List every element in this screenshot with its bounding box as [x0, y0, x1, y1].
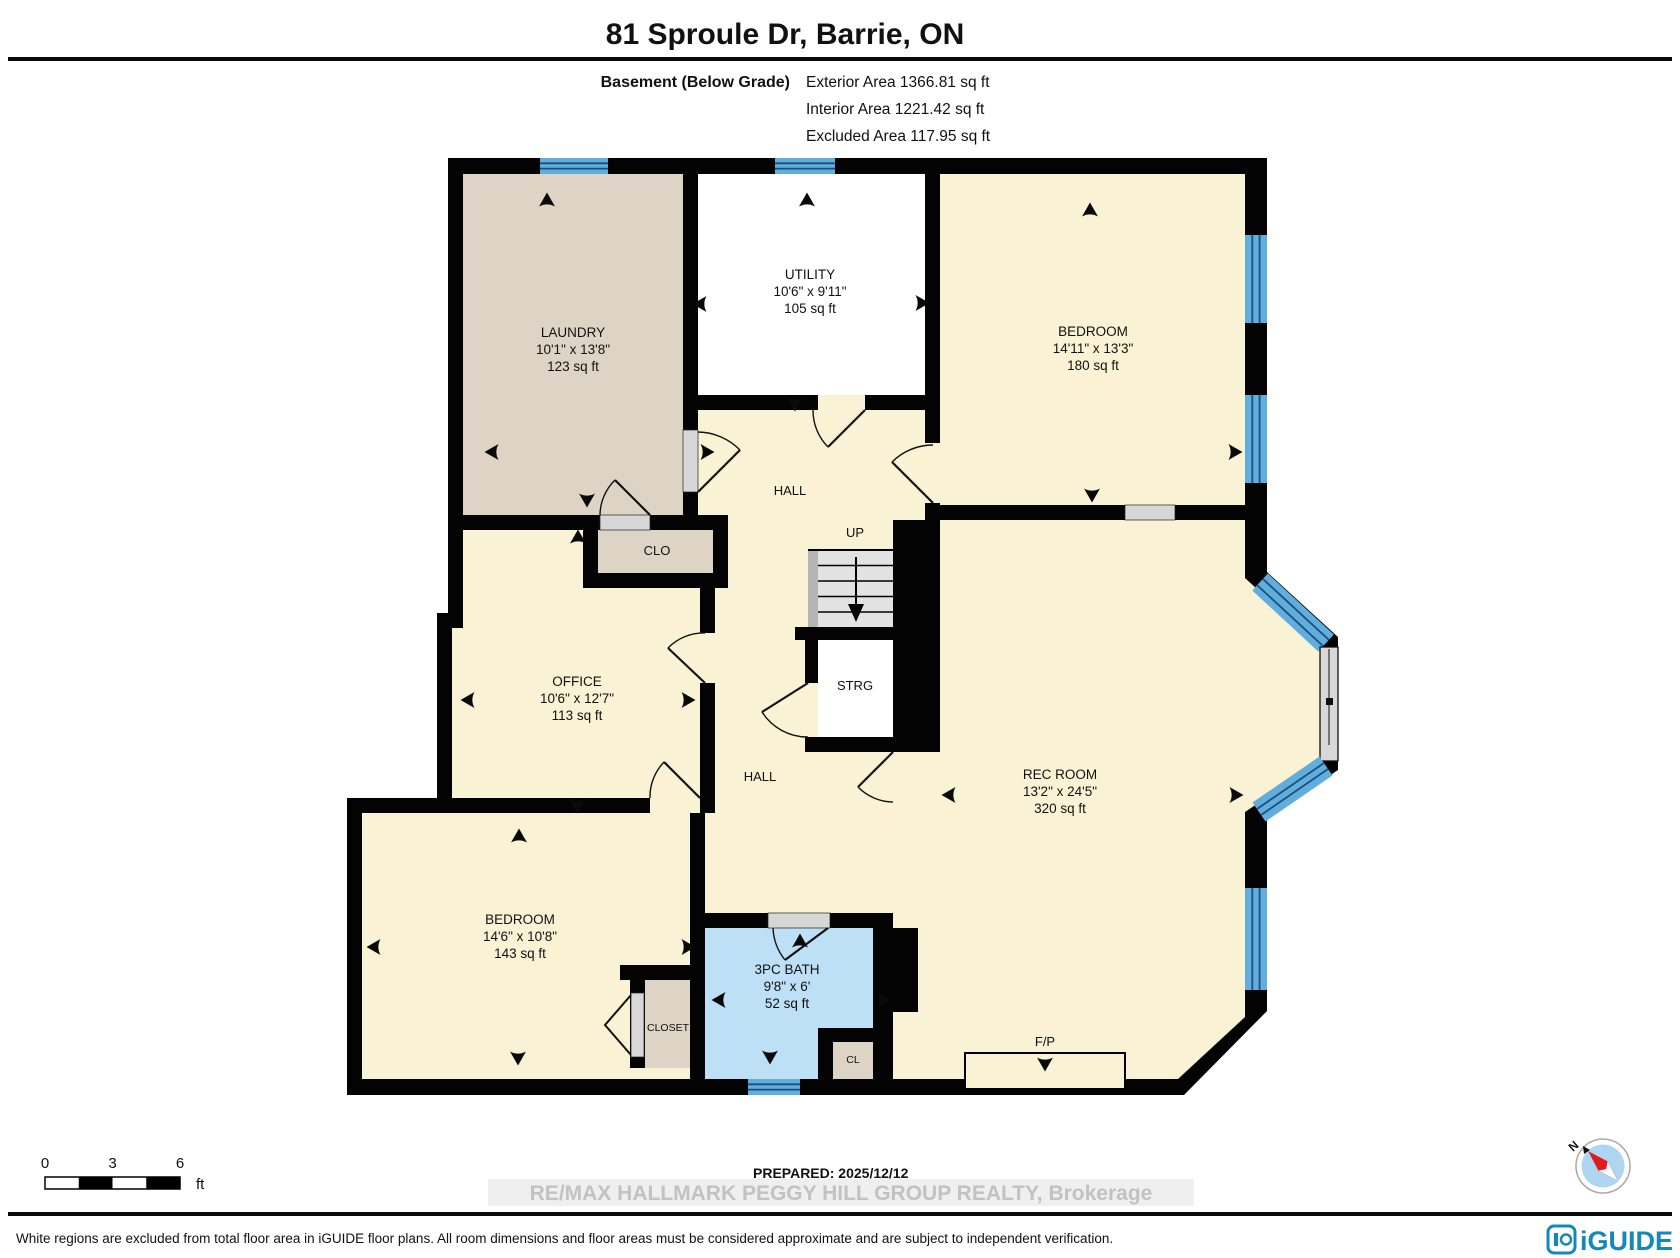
iguide-logo: iGUIDE	[1548, 1226, 1673, 1256]
hall-lower-label: HALL	[744, 769, 777, 784]
scale-tick-6: 6	[176, 1155, 184, 1172]
bedroom1-wall-window	[1125, 505, 1175, 520]
bath-door-opening	[768, 913, 830, 928]
room-dims: 13'2" x 24'5"	[1023, 784, 1097, 799]
area-stats: Exterior Area 1366.81 sq ft Interior Are…	[806, 74, 991, 145]
footer-divider	[8, 1212, 1672, 1216]
strg-door-opening	[805, 683, 818, 737]
room-dims: 10'1" x 13'8"	[536, 342, 610, 357]
bay-slider-window	[1320, 647, 1338, 761]
room-name: UTILITY	[785, 267, 835, 282]
closet-label: CLOSET	[647, 1022, 690, 1034]
header-divider	[8, 57, 1672, 61]
utility-door-opening	[818, 395, 865, 410]
window-rec-right	[1245, 888, 1267, 990]
up-label: UP	[846, 525, 864, 540]
room-area: 113 sq ft	[552, 708, 603, 723]
room-dims: 9'8" x 6'	[764, 979, 811, 994]
room-name: BEDROOM	[485, 912, 555, 927]
window-utility-top	[775, 158, 835, 174]
window-bedroom1-right-a	[1245, 235, 1267, 323]
fireplace-label: F/P	[1035, 1034, 1055, 1049]
room-area: 180 sq ft	[1067, 358, 1119, 373]
compass-icon: N	[1566, 1138, 1630, 1193]
cl-label: CL	[846, 1054, 860, 1066]
bedroom1-door-opening	[925, 443, 940, 503]
stairs	[808, 550, 893, 627]
window-bedroom1-right-b	[1245, 395, 1267, 483]
room-name: OFFICE	[552, 674, 602, 689]
strg-label: STRG	[837, 678, 873, 693]
hall-upper-label: HALL	[774, 483, 807, 498]
room-dims: 10'6" x 12'7"	[540, 691, 614, 706]
room-area: 143 sq ft	[494, 946, 546, 961]
floor-label: Basement (Below Grade)	[601, 74, 790, 91]
bedroom2-door-opening	[650, 798, 700, 813]
floorplan-canvas: 81 Sproule Dr, Barrie, ON Basement (Belo…	[0, 0, 1680, 1258]
scale-tick-3: 3	[108, 1155, 116, 1172]
scale-unit: ft	[196, 1176, 205, 1193]
scale-tick-0: 0	[41, 1155, 49, 1172]
stat-excluded: Excluded Area 117.95 sq ft	[806, 128, 991, 145]
iguide-logo-bar-icon	[1554, 1233, 1558, 1246]
brokerage-watermark: RE/MAX HALLMARK PEGGY HILL GROUP REALTY,…	[530, 1182, 1153, 1205]
room-name: LAUNDRY	[541, 325, 605, 340]
page-title: 81 Sproule Dr, Barrie, ON	[606, 18, 964, 51]
iguide-brand-text: iGUIDE	[1580, 1226, 1673, 1256]
room-name: BEDROOM	[1058, 324, 1128, 339]
floorplan-page: 81 Sproule Dr, Barrie, ON Basement (Belo…	[0, 0, 1680, 1258]
window-bath-bottom	[748, 1079, 800, 1095]
room-area: 105 sq ft	[784, 301, 836, 316]
office-door-opening	[700, 633, 715, 683]
room-dims: 14'11" x 13'3"	[1053, 341, 1134, 356]
laundry-door-opening	[683, 430, 698, 492]
scale-bar: 0 3 6 ft	[41, 1155, 205, 1193]
stat-interior: Interior Area 1221.42 sq ft	[806, 101, 985, 118]
room-area: 52 sq ft	[765, 996, 810, 1011]
iguide-logo-lens-icon	[1561, 1235, 1571, 1245]
stat-exterior: Exterior Area 1366.81 sq ft	[806, 74, 990, 91]
clo-door-opening	[600, 515, 650, 530]
room-name: 3PC BATH	[754, 962, 819, 977]
room-dims: 10'6" x 9'11"	[773, 284, 846, 299]
window-laundry-top	[540, 158, 608, 174]
prepared-date: PREPARED: 2025/12/12	[753, 1165, 909, 1181]
room-area: 320 sq ft	[1034, 801, 1086, 816]
clo-label: CLO	[644, 543, 671, 558]
room-name: REC ROOM	[1023, 767, 1097, 782]
compass-north-label: N	[1566, 1138, 1582, 1154]
room-area: 123 sq ft	[547, 359, 599, 374]
disclaimer-text: White regions are excluded from total fl…	[16, 1231, 1113, 1246]
room-dims: 14'6" x 10'8"	[483, 929, 557, 944]
